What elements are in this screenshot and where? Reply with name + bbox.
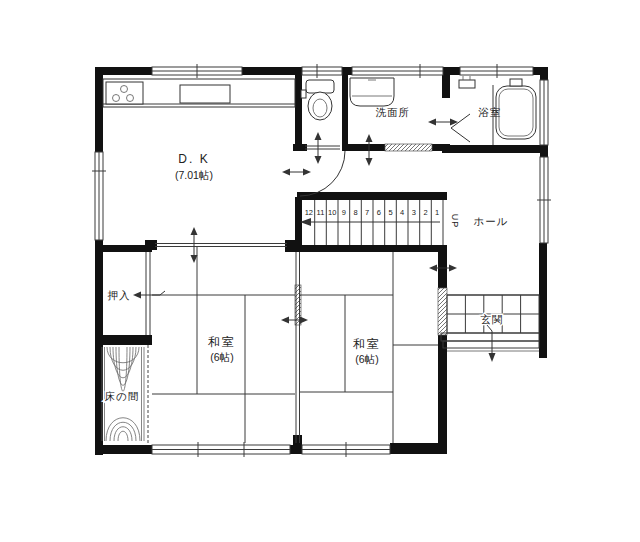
kitchen-sink [180, 85, 230, 103]
room-label-entrance: 玄関 [481, 313, 504, 325]
stair-step-number: 6 [377, 208, 381, 217]
room-label-bath: 浴室 [478, 106, 502, 118]
floor-plan: 12 11 10 9 8 7 6 5 4 3 2 1 UP [0, 0, 640, 542]
room-size-tatami-left: (6帖) [210, 351, 233, 363]
room-label-dk: D. K [178, 152, 209, 166]
stair-step-number: 9 [342, 208, 346, 217]
stair-step-number: 1 [435, 208, 439, 217]
room-label-washroom: 洗面所 [376, 106, 411, 118]
toilet-fixture [301, 80, 334, 120]
stair-step-number: 7 [365, 208, 369, 217]
room-label-tokonoma: 床の間 [105, 390, 140, 402]
stairs: 12 11 10 9 8 7 6 5 4 3 2 1 UP [300, 200, 460, 245]
tub-faucet [510, 79, 522, 86]
door-arcs [300, 114, 470, 196]
tatami-lines [152, 247, 438, 443]
kitchen-counter [103, 79, 295, 107]
stair-step-number: 12 [305, 208, 313, 217]
bath-folding-door [451, 114, 470, 142]
windows [92, 64, 551, 457]
room-size-tatami-right: (6帖) [355, 353, 378, 365]
stair-step-number: 2 [423, 208, 427, 217]
stair-step-number: 3 [412, 208, 416, 217]
genkan-step [441, 333, 539, 341]
stair-step-number: 11 [317, 208, 325, 217]
room-label-closet: 押入 [108, 289, 131, 301]
stair-step-number: 5 [388, 208, 392, 217]
room-label-hall: ホール [474, 215, 509, 227]
stair-step-number: 10 [328, 208, 336, 217]
room-label-tatami-left: 和室 [208, 335, 236, 349]
room-size-dk: (7.01帖) [175, 169, 213, 181]
bath-faucet [459, 80, 475, 88]
walls [95, 67, 548, 455]
washbasin [350, 78, 394, 106]
stairs-up-label: UP [450, 214, 460, 229]
stair-step-number: 4 [400, 208, 404, 217]
room-label-tatami-right: 和室 [353, 337, 381, 351]
stair-step-number: 8 [353, 208, 357, 217]
